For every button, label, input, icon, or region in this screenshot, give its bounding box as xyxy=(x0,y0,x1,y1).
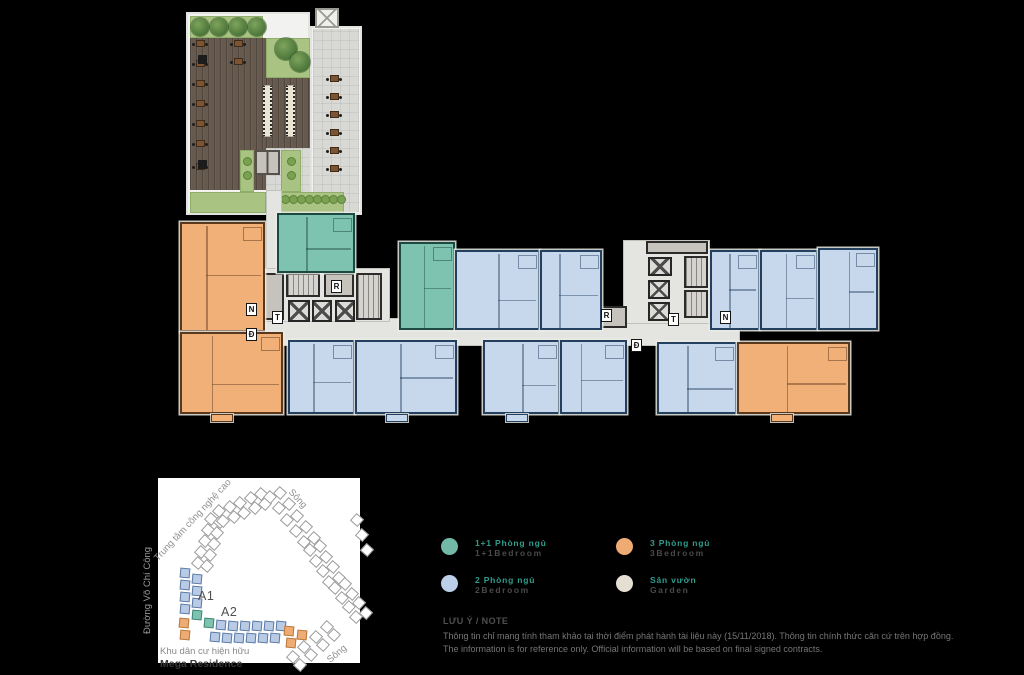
note-text-vietnamese: Thông tin chỉ mang tính tham khảo tại th… xyxy=(443,630,983,643)
legend-label-vn: Sân vườn xyxy=(650,575,696,585)
unit-type-legend: 1+1 Phòng ngủ1+1Bedroom2 Phòng ngủ2Bedro… xyxy=(0,0,1024,675)
legend-label-vn: 3 Phòng ngủ xyxy=(650,538,710,548)
legend-dot-one-plus-one-bedroom xyxy=(441,538,458,555)
legend-dot-garden xyxy=(616,575,633,592)
poster-canvas: NTRĐRTNĐ Trung tâm công nghệ cao Đường V… xyxy=(0,0,1024,675)
note-text-english: The information is for reference only. O… xyxy=(443,643,983,656)
legend-label-en: 3Bedroom xyxy=(650,548,710,558)
legend-item-three-bedroom: 3 Phòng ngủ3Bedroom xyxy=(616,538,710,558)
legend-label-en: 1+1Bedroom xyxy=(475,548,547,558)
note-block: LƯU Ý / NOTE Thông tin chỉ mang tính tha… xyxy=(443,616,983,655)
legend-dot-two-bedroom xyxy=(441,575,458,592)
legend-dot-three-bedroom xyxy=(616,538,633,555)
legend-item-two-bedroom: 2 Phòng ngủ2Bedroom xyxy=(441,575,535,595)
legend-label-en: 2Bedroom xyxy=(475,585,535,595)
legend-item-one-plus-one-bedroom: 1+1 Phòng ngủ1+1Bedroom xyxy=(441,538,547,558)
legend-label-en: Garden xyxy=(650,585,696,595)
note-title: LƯU Ý / NOTE xyxy=(443,616,983,626)
legend-item-garden: Sân vườnGarden xyxy=(616,575,696,595)
legend-label-vn: 2 Phòng ngủ xyxy=(475,575,535,585)
legend-label-vn: 1+1 Phòng ngủ xyxy=(475,538,547,548)
